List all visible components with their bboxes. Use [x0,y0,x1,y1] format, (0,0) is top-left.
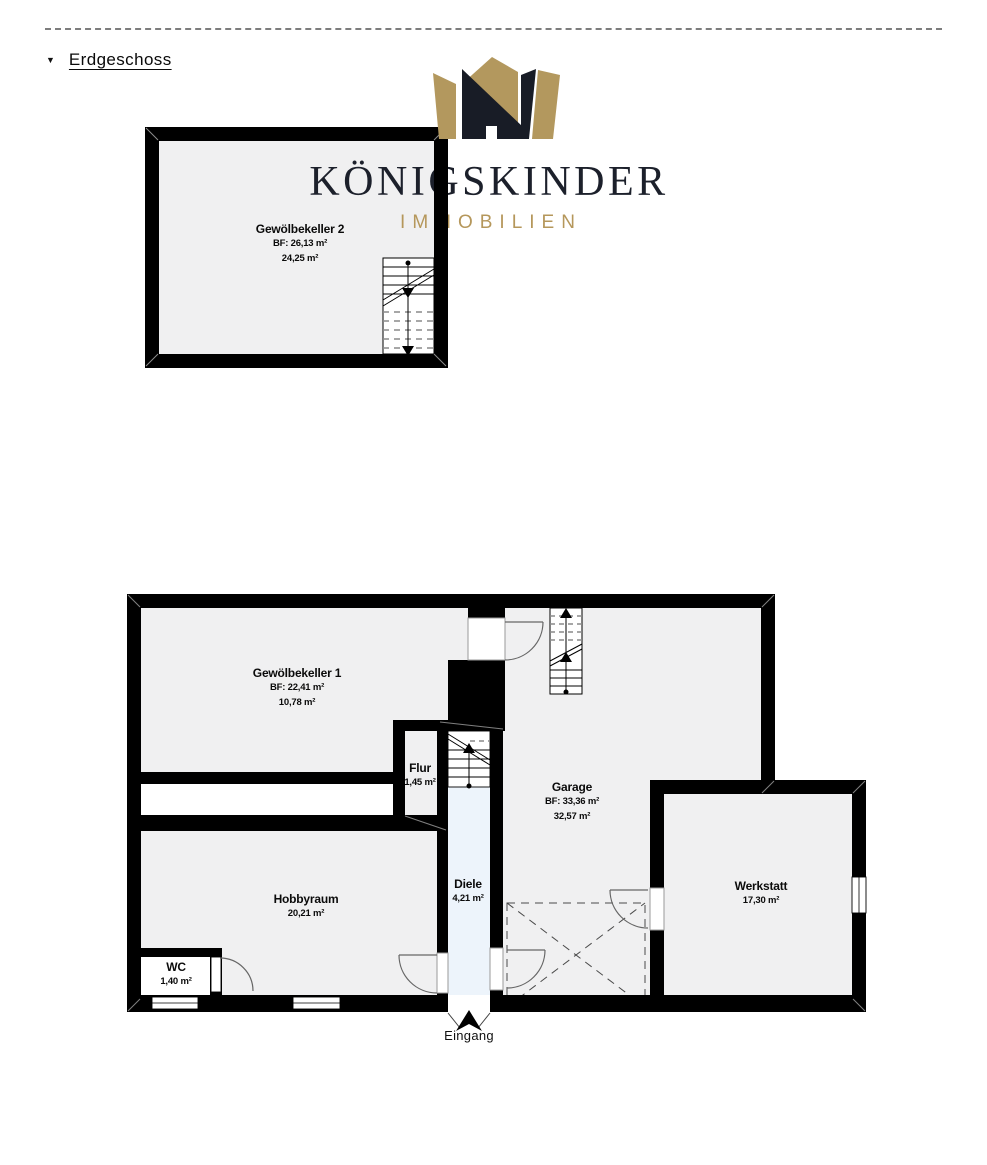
room-label-hobbyraum: Hobbyraum 20,21 m² [274,892,339,921]
room-label-garage: Garage BF: 33,36 m² 32,57 m² [545,780,599,824]
room-label-diele: Diele 4,21 m² [452,877,483,906]
room-label-wc: WC 1,40 m² [160,960,191,989]
stair-garage [550,608,582,695]
stair-diele [448,731,490,789]
door-hobbyraum-diele [437,953,448,993]
entrance-label: Eingang [444,1028,494,1043]
floorplan-canvas [0,0,987,1165]
room-label-gewoelbekeller1: Gewölbekeller 1 BF: 22,41 m² 10,78 m² [253,666,341,710]
room-label-gewoelbekeller2: Gewölbekeller 2 BF: 26,13 m² 24,25 m² [256,222,344,266]
stair-upper [383,258,434,356]
room-label-flur: Flur 1,45 m² [404,761,435,790]
door-garage-werkstatt [650,888,664,930]
room-label-werkstatt: Werkstatt 17,30 m² [735,879,788,908]
door-diele-garage [490,948,503,990]
door-gewoelbekeller1-garage [468,618,505,660]
floorplan-page: ▼ Erdgeschoss [0,0,987,1165]
logo-crown-icon [433,57,560,139]
door-wc [211,957,221,992]
